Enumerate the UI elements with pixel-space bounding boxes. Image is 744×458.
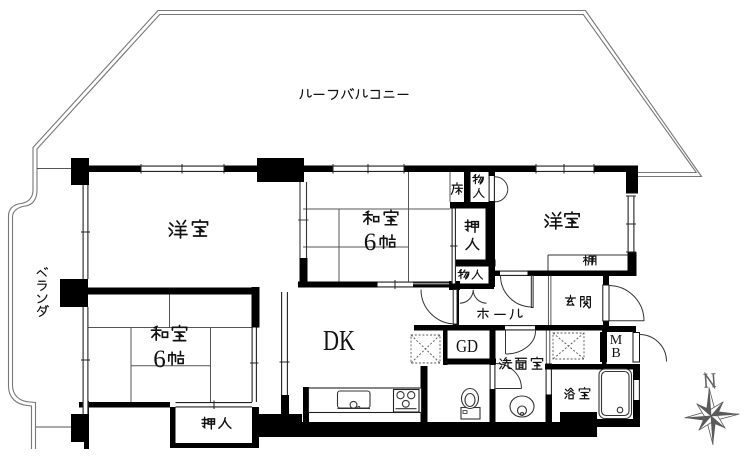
svg-text:6: 6 [364,229,377,256]
svg-text:B: B [611,346,620,361]
svg-text:6: 6 [153,346,166,373]
svg-text:DK: DK [323,326,355,357]
svg-text:GD: GD [456,336,478,356]
